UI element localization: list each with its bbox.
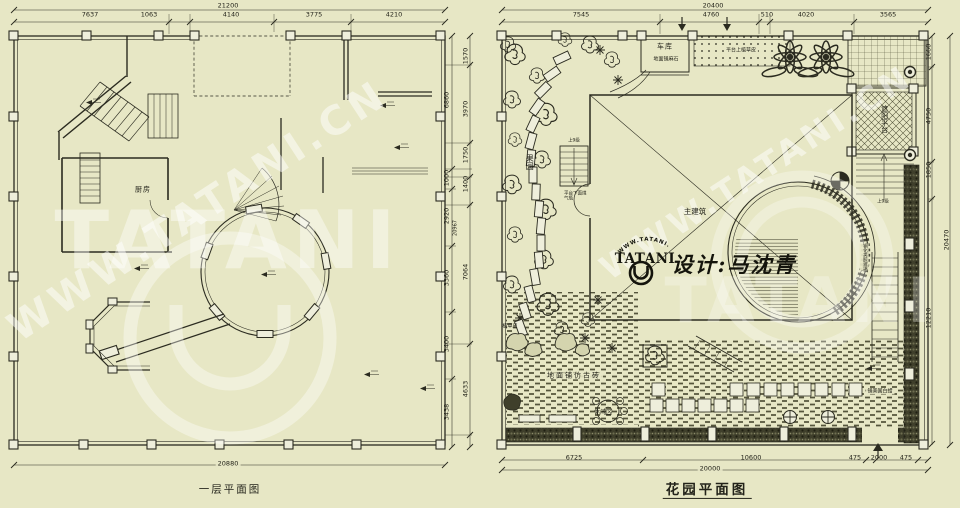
floorplan-canvas: WWW.TATANI.CN TATANI WWW.TATANI.CN TATAN…: [0, 0, 960, 508]
plan-drawing-svg: WWW.TATANI.CN TATANI WWW.TATANI.CN TATAN…: [0, 0, 960, 508]
watermark-logo-ring-right: [716, 176, 888, 348]
